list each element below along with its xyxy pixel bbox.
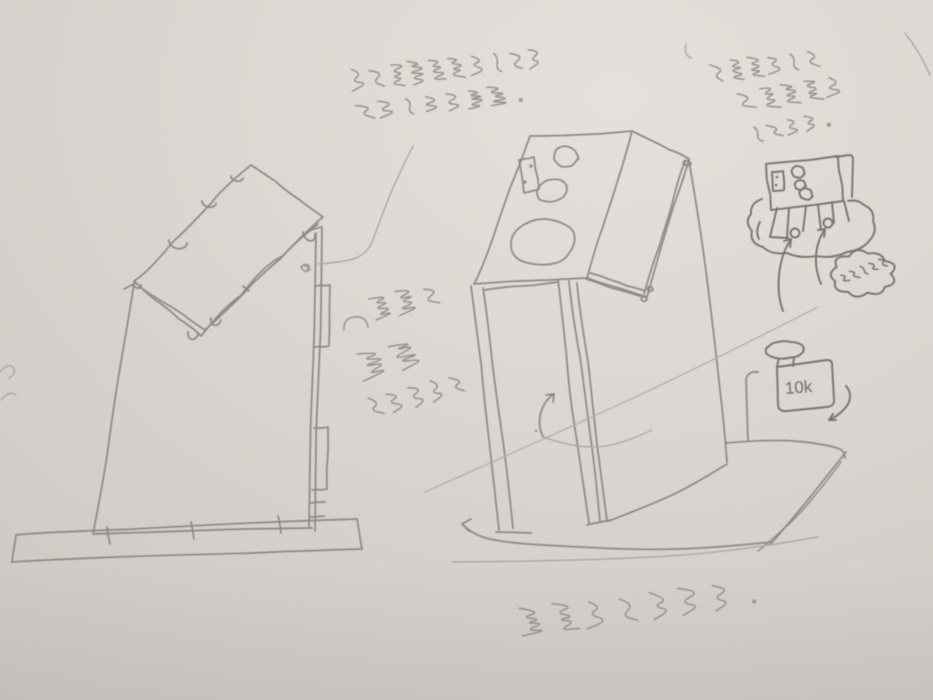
svg-text:10k: 10k [784, 377, 813, 398]
